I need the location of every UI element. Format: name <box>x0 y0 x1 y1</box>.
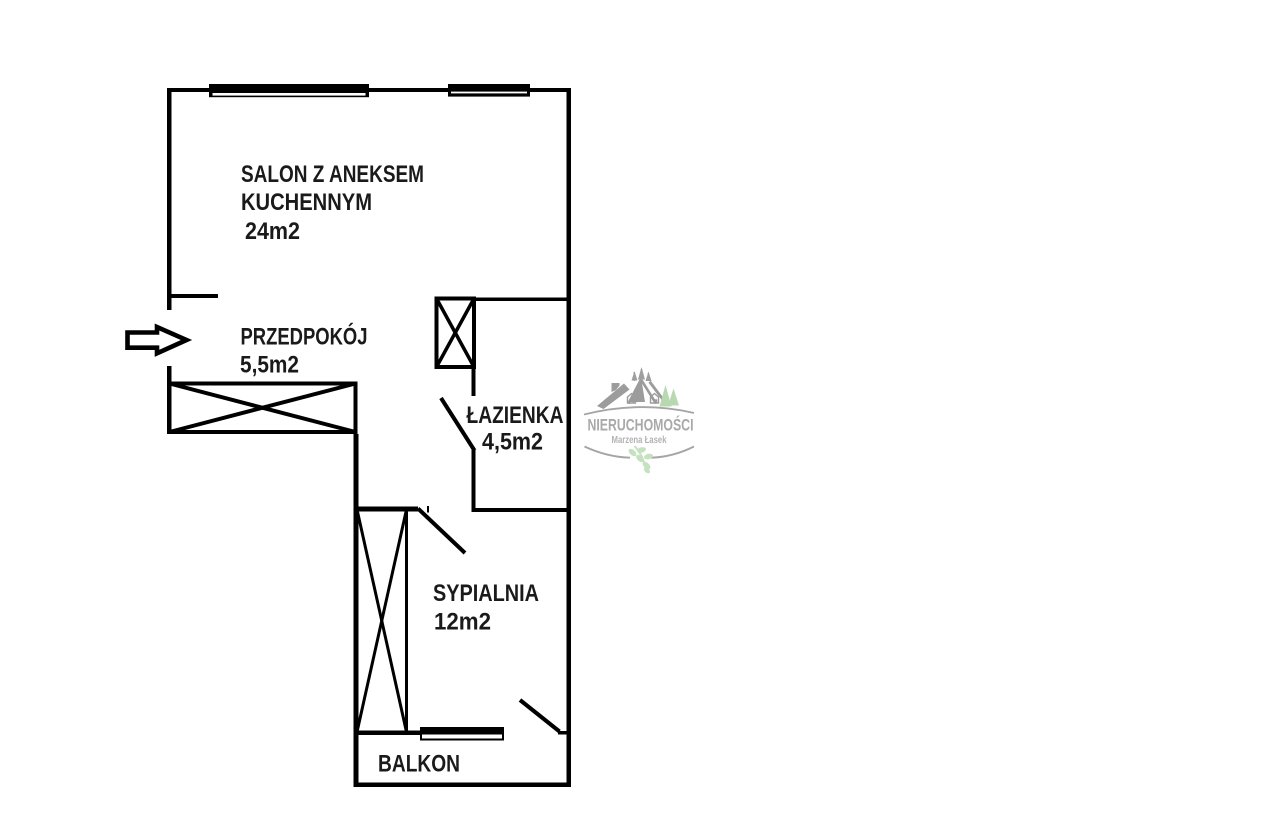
svg-text:PRZEDPOKÓJ: PRZEDPOKÓJ <box>241 323 368 351</box>
svg-text:SYPIALNIA: SYPIALNIA <box>433 580 539 607</box>
svg-text:12m2: 12m2 <box>434 609 491 636</box>
svg-text:4,5m2: 4,5m2 <box>482 429 543 456</box>
svg-text:5,5m2: 5,5m2 <box>240 352 299 379</box>
svg-text:24m2: 24m2 <box>245 218 300 245</box>
svg-text:KUCHENNYM: KUCHENNYM <box>241 189 372 216</box>
svg-text:BALKON: BALKON <box>378 750 460 777</box>
svg-text:NIERUCHOMOŚCI: NIERUCHOMOŚCI <box>588 416 694 435</box>
svg-text:Marzena Łasek: Marzena Łasek <box>612 435 667 446</box>
svg-text:SALON Z ANEKSEM: SALON Z ANEKSEM <box>241 161 424 188</box>
svg-text:ŁAZIENKA: ŁAZIENKA <box>467 402 564 429</box>
